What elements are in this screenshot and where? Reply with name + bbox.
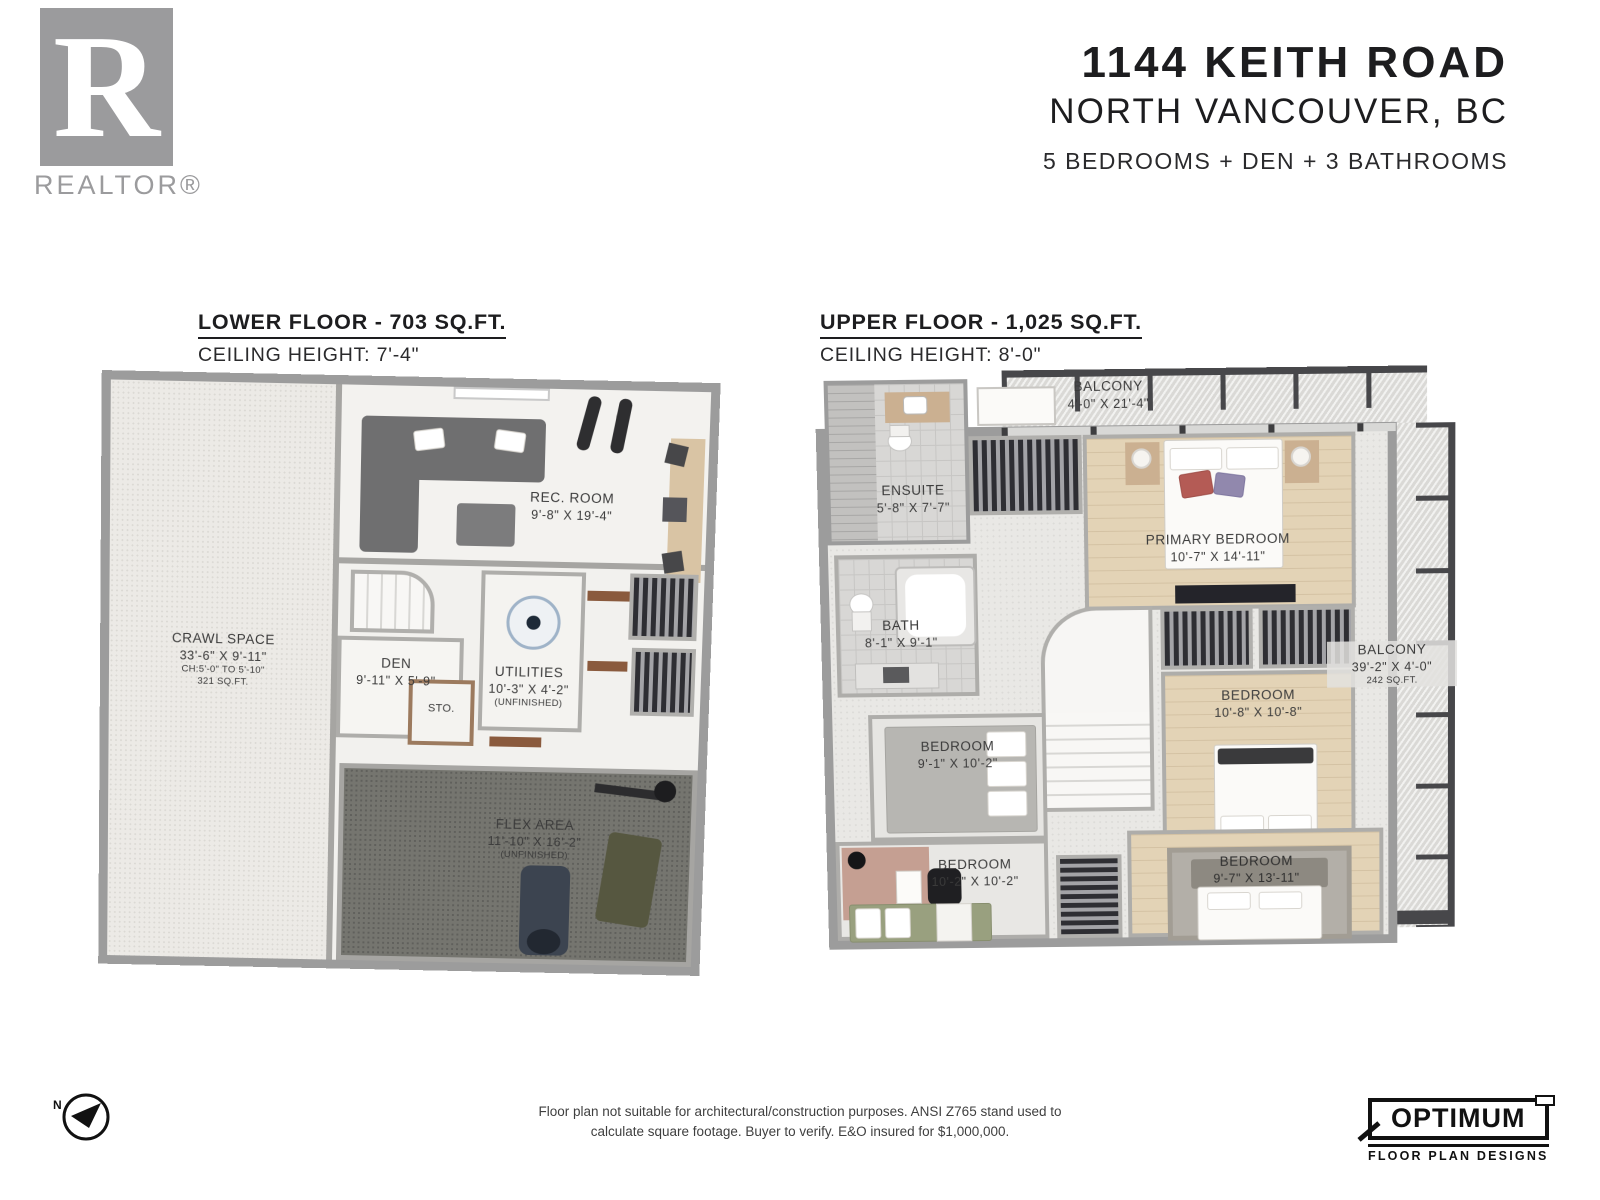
stair-landing bbox=[1040, 606, 1154, 713]
pillow bbox=[413, 427, 446, 451]
tape-hook-icon bbox=[1535, 1095, 1555, 1106]
disclaimer-text: Floor plan not suitable for architectura… bbox=[450, 1102, 1150, 1143]
pillow bbox=[1170, 447, 1223, 470]
lower-floor-ceiling: CEILING HEIGHT: 7'-4" bbox=[198, 344, 506, 367]
optimum-title: OPTIMUM bbox=[1391, 1103, 1526, 1133]
room-flex-area bbox=[336, 763, 698, 967]
optimum-subtitle: FLOOR PLAN DESIGNS bbox=[1368, 1144, 1549, 1163]
stairs bbox=[1042, 712, 1155, 812]
optimum-logo-box: OPTIMUM bbox=[1368, 1098, 1549, 1140]
weight-plate bbox=[654, 780, 677, 802]
upper-floor-ceiling: CEILING HEIGHT: 8'-0" bbox=[820, 344, 1142, 367]
lower-floor-title: LOWER FLOOR - 703 SQ.FT. bbox=[198, 310, 506, 339]
room-bedroom-left bbox=[868, 713, 1048, 842]
north-compass: N bbox=[56, 1088, 114, 1146]
balcony-rail-corner bbox=[1397, 910, 1454, 924]
room-label-balcony-top: BALCONY 4'-0" X 21'-4" bbox=[987, 376, 1230, 414]
tile-wall bbox=[828, 384, 878, 541]
room-label-bedroom-bottom-right: BEDROOM 9'-7" X 13'-11" bbox=[1177, 852, 1336, 887]
room-label-bedroom-bottom-left: BEDROOM 10'-2" X 10'-2" bbox=[895, 855, 1054, 890]
sectional-sofa-chaise bbox=[359, 416, 420, 553]
realtor-r-icon: R bbox=[53, 17, 160, 158]
room-label-flex-area: FLEX AREA 11'-10" X 16'-2" (UNFINISHED) bbox=[435, 814, 635, 863]
wood-threshold bbox=[587, 591, 629, 602]
sink bbox=[903, 396, 928, 415]
tape-icon bbox=[1357, 1121, 1380, 1142]
room-label-rec-room: REC. ROOM 9'-8" X 19'-4" bbox=[471, 487, 674, 526]
room-label-crawl-space: CRAWL SPACE 33'-6" X 9'-11" CH:5'-0" TO … bbox=[123, 628, 324, 691]
room-label-storage: STO. bbox=[408, 701, 474, 717]
accent-pillow bbox=[1213, 472, 1246, 498]
closet-rack bbox=[628, 573, 698, 641]
room-rec-room bbox=[339, 384, 711, 571]
pillow bbox=[1259, 891, 1303, 909]
guitar bbox=[575, 395, 602, 452]
room-ensuite bbox=[824, 379, 971, 545]
disclaimer-line-2: calculate square footage. Buyer to verif… bbox=[450, 1122, 1150, 1142]
room-label-primary-bedroom: PRIMARY BEDROOM 10'-7" X 14'-11" bbox=[1107, 529, 1328, 566]
stairs bbox=[350, 570, 436, 634]
closet-rack bbox=[1056, 854, 1123, 938]
city-subtitle: NORTH VANCOUVER, BC bbox=[1043, 92, 1508, 132]
guitar bbox=[609, 398, 633, 455]
room-label-ensuite: ENSUITE 5'-8" X 7'-7" bbox=[837, 481, 989, 517]
realtor-wordmark: REALTOR® bbox=[34, 170, 203, 201]
desk-lamp bbox=[848, 852, 866, 870]
listing-header: 1144 KEITH ROAD NORTH VANCOUVER, BC 5 BE… bbox=[1043, 38, 1508, 175]
compass-n-label: N bbox=[52, 1098, 63, 1112]
room-label-bedroom-middle: BEDROOM 10'-8" X 10'-8" bbox=[1161, 685, 1355, 721]
room-label-bath: BATH 8'-1" X 9'-1" bbox=[836, 616, 967, 651]
upper-floor-plan: BALCONY 4'-0" X 21'-4" BALCONY 39'-2" X … bbox=[814, 365, 1462, 967]
lower-floor-heading: LOWER FLOOR - 703 SQ.FT. CEILING HEIGHT:… bbox=[198, 310, 506, 367]
floor-plan-sheet: R REALTOR® 1144 KEITH ROAD NORTH VANCOUV… bbox=[0, 0, 1600, 1200]
lower-floor-plan: CRAWL SPACE 33'-6" X 9'-11" CH:5'-0" TO … bbox=[98, 370, 720, 976]
realtor-logo: R bbox=[40, 8, 173, 166]
compass-icon bbox=[56, 1088, 114, 1146]
rooms-summary: 5 BEDROOMS + DEN + 3 BATHROOMS bbox=[1043, 148, 1508, 175]
upper-floor-title: UPPER FLOOR - 1,025 SQ.FT. bbox=[820, 310, 1142, 339]
closet-rack bbox=[630, 648, 696, 717]
blanket bbox=[936, 903, 972, 941]
pillow bbox=[885, 908, 911, 939]
pillow bbox=[1207, 892, 1251, 910]
wood-threshold bbox=[489, 736, 541, 747]
lamp bbox=[1291, 446, 1311, 467]
upper-floor-heading: UPPER FLOOR - 1,025 SQ.FT. CEILING HEIGH… bbox=[820, 310, 1142, 367]
speaker bbox=[662, 551, 685, 574]
address-title: 1144 KEITH ROAD bbox=[1043, 38, 1508, 88]
bed-throw bbox=[1218, 747, 1314, 764]
window bbox=[453, 387, 550, 401]
lamp bbox=[1131, 448, 1151, 469]
disclaimer-line-1: Floor plan not suitable for architectura… bbox=[450, 1102, 1150, 1122]
pillow bbox=[987, 790, 1027, 816]
tv-bench bbox=[1175, 584, 1296, 604]
pillow bbox=[494, 429, 527, 454]
optimum-logo: OPTIMUM FLOOR PLAN DESIGNS bbox=[1368, 1098, 1549, 1163]
room-primary-bedroom bbox=[1083, 432, 1356, 611]
pillow bbox=[855, 908, 881, 939]
room-label-bedroom-left: BEDROOM 9'-1" X 10'-2" bbox=[877, 737, 1039, 772]
closet-rack bbox=[1160, 607, 1253, 670]
toilet-tank bbox=[889, 425, 909, 437]
room-label-balcony-right: BALCONY 39'-2" X 4'-0" 242 SQ.FT. bbox=[1327, 640, 1457, 688]
sink bbox=[883, 667, 909, 683]
pillow bbox=[1226, 447, 1279, 470]
